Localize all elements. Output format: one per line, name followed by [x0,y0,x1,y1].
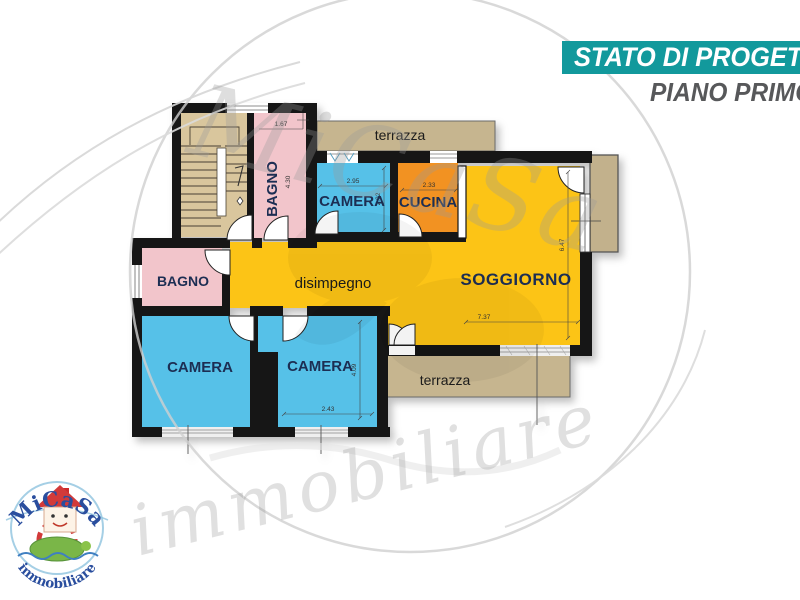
subtitle-text: PIANO PRIMO [650,78,800,107]
window-camera-bl [162,425,233,454]
label-bagno-left: BAGNO [157,273,209,289]
label-camera-bm: CAMERA [287,358,353,375]
logo-tagline-text: immobiliare [14,560,99,592]
watermark: MiCaSa immobiliare [0,0,705,572]
dim-camera-bm-width: 2.43 [322,406,335,413]
agency-logo: MiCaSa immobiliare [4,482,110,592]
title-banner-text: STATO DI PROGETTO [574,41,800,72]
header: STATO DI PROGETTO PIANO PRIMO [562,41,800,107]
window-bagno-left-wall [132,265,142,298]
floorplan-page: 1.67 4.30 2.95 2.92 2.33 6.47 7.37 2.43 … [0,0,800,600]
logo-turtle-head [81,541,91,551]
logo-house-eye-right [64,514,68,518]
logo-tagline-textpath: immobiliare [14,560,99,592]
logo-house-eye-left [51,514,55,518]
label-camera-bl: CAMERA [167,359,233,376]
